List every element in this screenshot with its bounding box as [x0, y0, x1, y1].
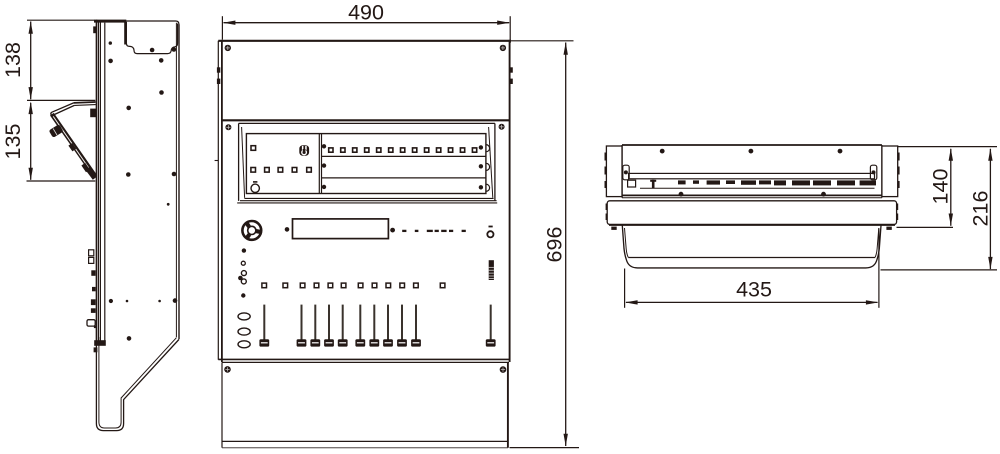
- svg-text:490: 490: [348, 0, 384, 24]
- svg-text:435: 435: [736, 277, 772, 301]
- svg-text:138: 138: [1, 42, 25, 78]
- svg-text:140: 140: [929, 169, 953, 205]
- svg-text:216: 216: [969, 191, 993, 227]
- svg-text:135: 135: [1, 124, 25, 160]
- svg-text:696: 696: [543, 227, 567, 263]
